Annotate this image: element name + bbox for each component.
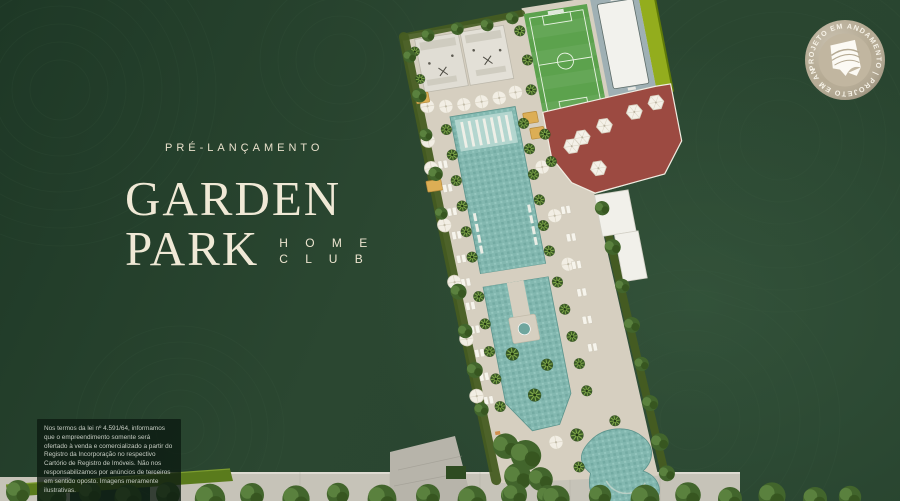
page-title-line2: PARK bbox=[125, 224, 259, 274]
planter bbox=[446, 466, 466, 479]
launch-banner: PROJETO EM ANDAMENTO | PROJETO EM ANDAME… bbox=[0, 0, 900, 501]
tagline-line2: C L U B bbox=[279, 251, 374, 267]
hero-text-block: PRÉ-LANÇAMENTO GARDEN PARK H O M E C L U… bbox=[125, 142, 374, 274]
legal-disclaimer: Nos termos da lei nº 4.591/64, informamo… bbox=[37, 419, 181, 501]
page-title-line1: GARDEN bbox=[125, 174, 374, 224]
tagline: H O M E C L U B bbox=[279, 235, 374, 267]
pretitle: PRÉ-LANÇAMENTO bbox=[165, 142, 374, 154]
tagline-line1: H O M E bbox=[279, 235, 374, 251]
